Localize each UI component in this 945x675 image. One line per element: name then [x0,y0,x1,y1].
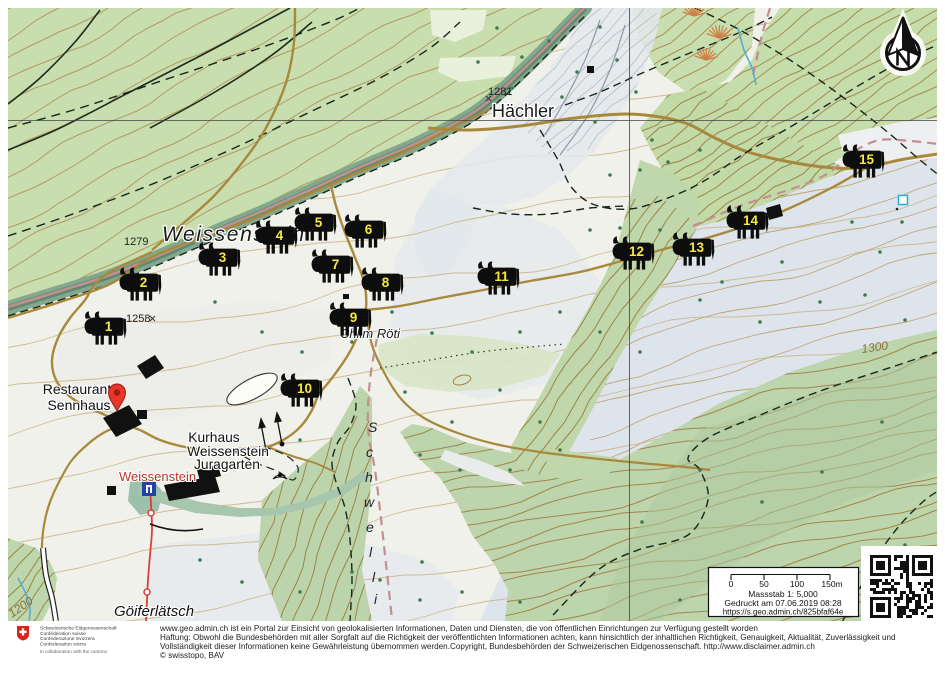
svg-text:50: 50 [759,579,769,589]
svg-text:5: 5 [315,215,323,230]
svg-text:Chlim Röti: Chlim Röti [340,326,401,341]
svg-text:Confederazione Svizzera: Confederazione Svizzera [40,636,95,642]
svg-text:https://s.geo.admin.ch/825bfaf: https://s.geo.admin.ch/825bfaf64e [723,608,844,617]
svg-text:e: e [366,519,374,535]
svg-text:c: c [366,444,373,460]
svg-text:12: 12 [629,244,644,259]
svg-text:h: h [365,469,373,485]
svg-text:14: 14 [743,213,759,228]
svg-text:6: 6 [365,222,373,237]
svg-text:3: 3 [219,250,227,265]
svg-text:Schweizerische Eidgenossenscha: Schweizerische Eidgenossenschaft [40,626,117,632]
svg-text:Confédération suisse: Confédération suisse [40,631,86,637]
svg-text:www.geo.admin.ch ist ein Porta: www.geo.admin.ch ist ein Portal zur Eins… [159,624,758,633]
svg-text:Sennhaus: Sennhaus [47,397,110,413]
svg-text:1279: 1279 [124,236,148,248]
svg-text:7: 7 [332,257,340,272]
svg-text:Hächler: Hächler [492,101,554,121]
svg-text:1258: 1258 [126,313,150,325]
svg-text:8: 8 [382,275,390,290]
svg-text:Juragarten: Juragarten [194,457,260,472]
svg-text:1281: 1281 [488,86,512,98]
svg-text:In collaboration with the cant: In collaboration with the cantons [40,649,108,654]
svg-text:Gedruckt am 07.06.2019 08:28: Gedruckt am 07.06.2019 08:28 [724,598,841,608]
svg-text:Haftung: Obwohl die Bundesbehö: Haftung: Obwohl die Bundesbehörden mit a… [160,633,896,642]
svg-text:w: w [364,494,375,510]
svg-text:4: 4 [276,228,284,243]
svg-text:150m: 150m [821,579,842,589]
svg-text:1: 1 [105,319,113,334]
svg-text:© swisstopo, BAV: © swisstopo, BAV [160,651,225,660]
svg-text:Weissenstein: Weissenstein [119,469,196,484]
svg-text:S: S [368,419,378,435]
svg-text:100: 100 [790,579,804,589]
svg-text:Confederaziun svizra: Confederaziun svizra [40,641,86,647]
svg-text:Vollständigkeit dieser Informa: Vollständigkeit dieser Informationen kei… [160,642,815,651]
svg-text:15: 15 [859,152,875,167]
svg-text:11: 11 [494,269,509,284]
svg-text:9: 9 [350,310,358,325]
svg-text:Göiferlätsch: Göiferlätsch [114,603,194,620]
svg-text:10: 10 [297,381,312,396]
svg-text:Restaurant: Restaurant [43,381,112,397]
svg-text:13: 13 [689,240,705,255]
svg-text:0: 0 [729,579,734,589]
svg-text:2: 2 [140,275,148,290]
svg-text:Kurhaus: Kurhaus [188,430,239,445]
